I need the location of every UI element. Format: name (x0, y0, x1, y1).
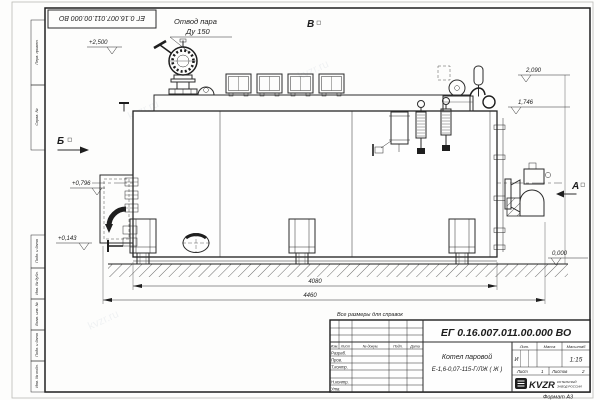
lit-label: Лит. (519, 344, 529, 349)
burner-control-box (524, 169, 544, 184)
ground (108, 264, 568, 277)
scale-label: Масштаб (567, 344, 586, 349)
svg-text:+2,500: +2,500 (89, 40, 108, 46)
svg-text:0,000: 0,000 (552, 251, 568, 257)
level-mark-0143: +0,143 (56, 236, 92, 250)
svg-text:+0,796: +0,796 (72, 181, 91, 187)
stamp-podp-data-2: Подп. и дата (35, 333, 39, 357)
reference-note: Все размеры для справок (337, 312, 403, 318)
hatch-4 (319, 74, 344, 96)
drawing-sheet: kvzr.ru kvzr.ru kvzr.ru kvzr.ru kvzr.ru … (0, 0, 600, 400)
level-mark-2090: 2,090 (518, 68, 570, 82)
product-name: Котел паровой (442, 353, 492, 361)
doc-number: ЕГ 0.16.007.011.00.000 ВО (441, 327, 571, 339)
stamp-inv-podl: Инв. № подл. (35, 364, 39, 388)
stamp-podp-data-1: Подп. и дата (35, 239, 39, 263)
view-b-arrow (80, 147, 89, 154)
bent-pipe (470, 88, 485, 96)
steam-outlet-valve (154, 39, 197, 94)
smoke-box (100, 175, 133, 243)
svg-text:2,090: 2,090 (525, 68, 542, 74)
top-platform (154, 95, 470, 111)
sheet-label: Лист (516, 369, 528, 374)
row-prov: Пров. (331, 358, 342, 363)
ref-number-text: ЕГ 0.16.007.011.00.000 ВО (58, 14, 145, 21)
sheets-value: 2 (581, 369, 585, 374)
col-data: Дата (409, 345, 419, 349)
row-utv: Утв. (331, 387, 341, 392)
scale-value: 1:15 (570, 357, 583, 364)
col-podp: Подп. (393, 345, 403, 349)
stamp-perv-primen: Перв. примен. (35, 39, 39, 64)
svg-text:4080: 4080 (308, 279, 322, 285)
gas-flow-arrowhead (105, 224, 113, 233)
kvzr-logo-text: KVZR (529, 380, 555, 391)
view-marker-a: А (556, 181, 585, 198)
svg-text:В: В (307, 19, 314, 30)
row-tkontr: Т.контр. (331, 365, 348, 370)
level-mark-1746: 1,746 (508, 100, 570, 114)
top-hatches (226, 74, 344, 96)
burner-motor (507, 198, 520, 216)
svg-text:Б: Б (57, 136, 64, 147)
company-line-1: КОТЕЛЬНЫЙ (557, 380, 577, 384)
svg-text:4460: 4460 (303, 293, 317, 299)
callout-line-1: Отвод пара (174, 17, 217, 26)
col-ndocum: № докум. (363, 345, 379, 349)
svg-text:А: А (571, 181, 579, 192)
company-line-2: ЗАВОД РОССИИ (557, 385, 582, 389)
lifting-lug (198, 87, 214, 95)
lit-value: И (515, 357, 519, 363)
dashed-box (438, 66, 450, 80)
left-stamp-cells: Перв. примен. Справ. № Подп. и дата Инв.… (31, 20, 45, 392)
callout-line-2: Ду 150 (185, 27, 211, 36)
gas-flow-elbow (109, 209, 126, 226)
eyelet-ring (483, 96, 495, 108)
burner-assembly (505, 163, 551, 216)
level-mark-2500: +2,500 (87, 40, 122, 54)
ground-hatch (108, 264, 568, 277)
burner-housing (520, 190, 544, 216)
title-block: Изм. Лист № докум. Подп. Дата Разраб. Пр… (330, 320, 590, 400)
view-a-arrow (556, 191, 564, 198)
boiler-elevation-view (92, 39, 568, 277)
svg-text:+0,143: +0,143 (58, 236, 77, 242)
valve-stem (160, 45, 171, 53)
product-model: Е-1,6-0,07-115-Г/ЛЖ ( Ж ) (432, 367, 503, 373)
level-mark-0000: 0,000 (548, 251, 588, 265)
svg-text:kvzr.ru: kvzr.ru (86, 308, 120, 333)
view-marker-v: В (307, 19, 321, 30)
col-list: Лист (340, 345, 350, 349)
pump-volute (449, 80, 465, 96)
stamp-sprav-no: Справ. № (35, 108, 39, 125)
stamp-vzam-inv: Взам. инв. № (35, 302, 39, 325)
hatch-2 (257, 74, 282, 96)
top-left-fitting (119, 103, 129, 111)
view-marker-b: Б (57, 136, 89, 154)
sheets-label: Листов (551, 369, 568, 374)
mass-label: Масса (544, 344, 557, 349)
svg-text:1,746: 1,746 (518, 100, 534, 106)
format-label: Формат А3 (543, 395, 574, 400)
valve-handwheel (154, 41, 166, 48)
boiler-ga-drawing: kvzr.ru kvzr.ru kvzr.ru kvzr.ru kvzr.ru … (0, 0, 600, 400)
row-nkontr: Н.контр. (331, 380, 349, 385)
row-razrab: Разраб. (331, 351, 346, 356)
hatch-1 (226, 74, 251, 96)
col-izm: Изм. (331, 345, 339, 349)
silencer-capsule (474, 66, 483, 85)
stamp-inv-dubl: Инв. № дубл. (35, 271, 39, 294)
